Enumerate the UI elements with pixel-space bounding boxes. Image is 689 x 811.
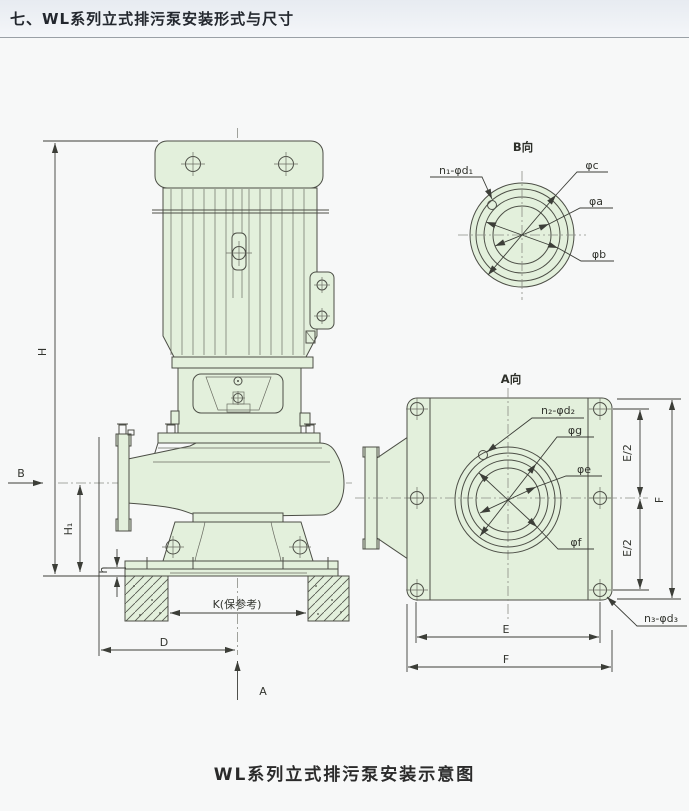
label-phi-f: φf [570, 536, 582, 549]
view-a-bottom-dimensions: E F [407, 602, 612, 672]
view-b: B向 φc φa φb n₁-φd₁ [430, 140, 614, 300]
label-phi-c: φc [585, 159, 598, 172]
figure-caption: WL系列立式排污泵安装示意图 [0, 760, 689, 785]
view-a-title: A向 [501, 372, 521, 386]
dim-label-F-bottom: F [503, 653, 509, 666]
view-a-right-dimensions: E/2 E/2 F [613, 399, 681, 599]
dim-label-E-bottom: E [503, 623, 510, 636]
view-b-title: B向 [513, 140, 533, 154]
label-n3-d3: n₃-φd₃ [644, 612, 678, 625]
bracket-lug [171, 411, 179, 424]
label-n1-d1: n₁-φd₁ [439, 164, 473, 177]
dim-label-F-right: F [653, 497, 666, 503]
dim-label-E2-top: E/2 [621, 444, 634, 462]
label-phi-a: φa [589, 195, 603, 208]
pedestal [162, 513, 313, 561]
label-phi-g: φg [568, 424, 582, 437]
dim-label-E2-bottom: E/2 [621, 539, 634, 557]
pump-installation-drawing: H B H₁ h K(保参考) D A B向 [0, 0, 689, 811]
dim-label-D: D [160, 636, 168, 649]
side-view: H B H₁ h K(保参考) D A [8, 128, 352, 700]
dim-label-B: B [17, 467, 25, 480]
volute [128, 443, 344, 517]
dim-label-A: A [259, 685, 267, 698]
label-phi-e: φe [577, 463, 591, 476]
view-a: A向 φg [355, 372, 687, 672]
dim-label-K: K(保参考) [213, 597, 262, 611]
page-header: 七、WL系列立式排污泵安装形式与尺寸 [0, 0, 689, 38]
dim-label-H1: H₁ [62, 523, 75, 536]
label-n2-d2: n₂-φd₂ [541, 404, 575, 417]
motor-foot [172, 357, 313, 368]
motor [152, 141, 334, 368]
dim-label-H: H [36, 348, 49, 356]
label-phi-b: φb [592, 248, 606, 261]
motor-cap [155, 141, 323, 188]
coupling-bracket [171, 368, 310, 433]
section-title: 七、WL系列立式排污泵安装形式与尺寸 [0, 8, 294, 29]
casing-top-plate [158, 433, 320, 443]
